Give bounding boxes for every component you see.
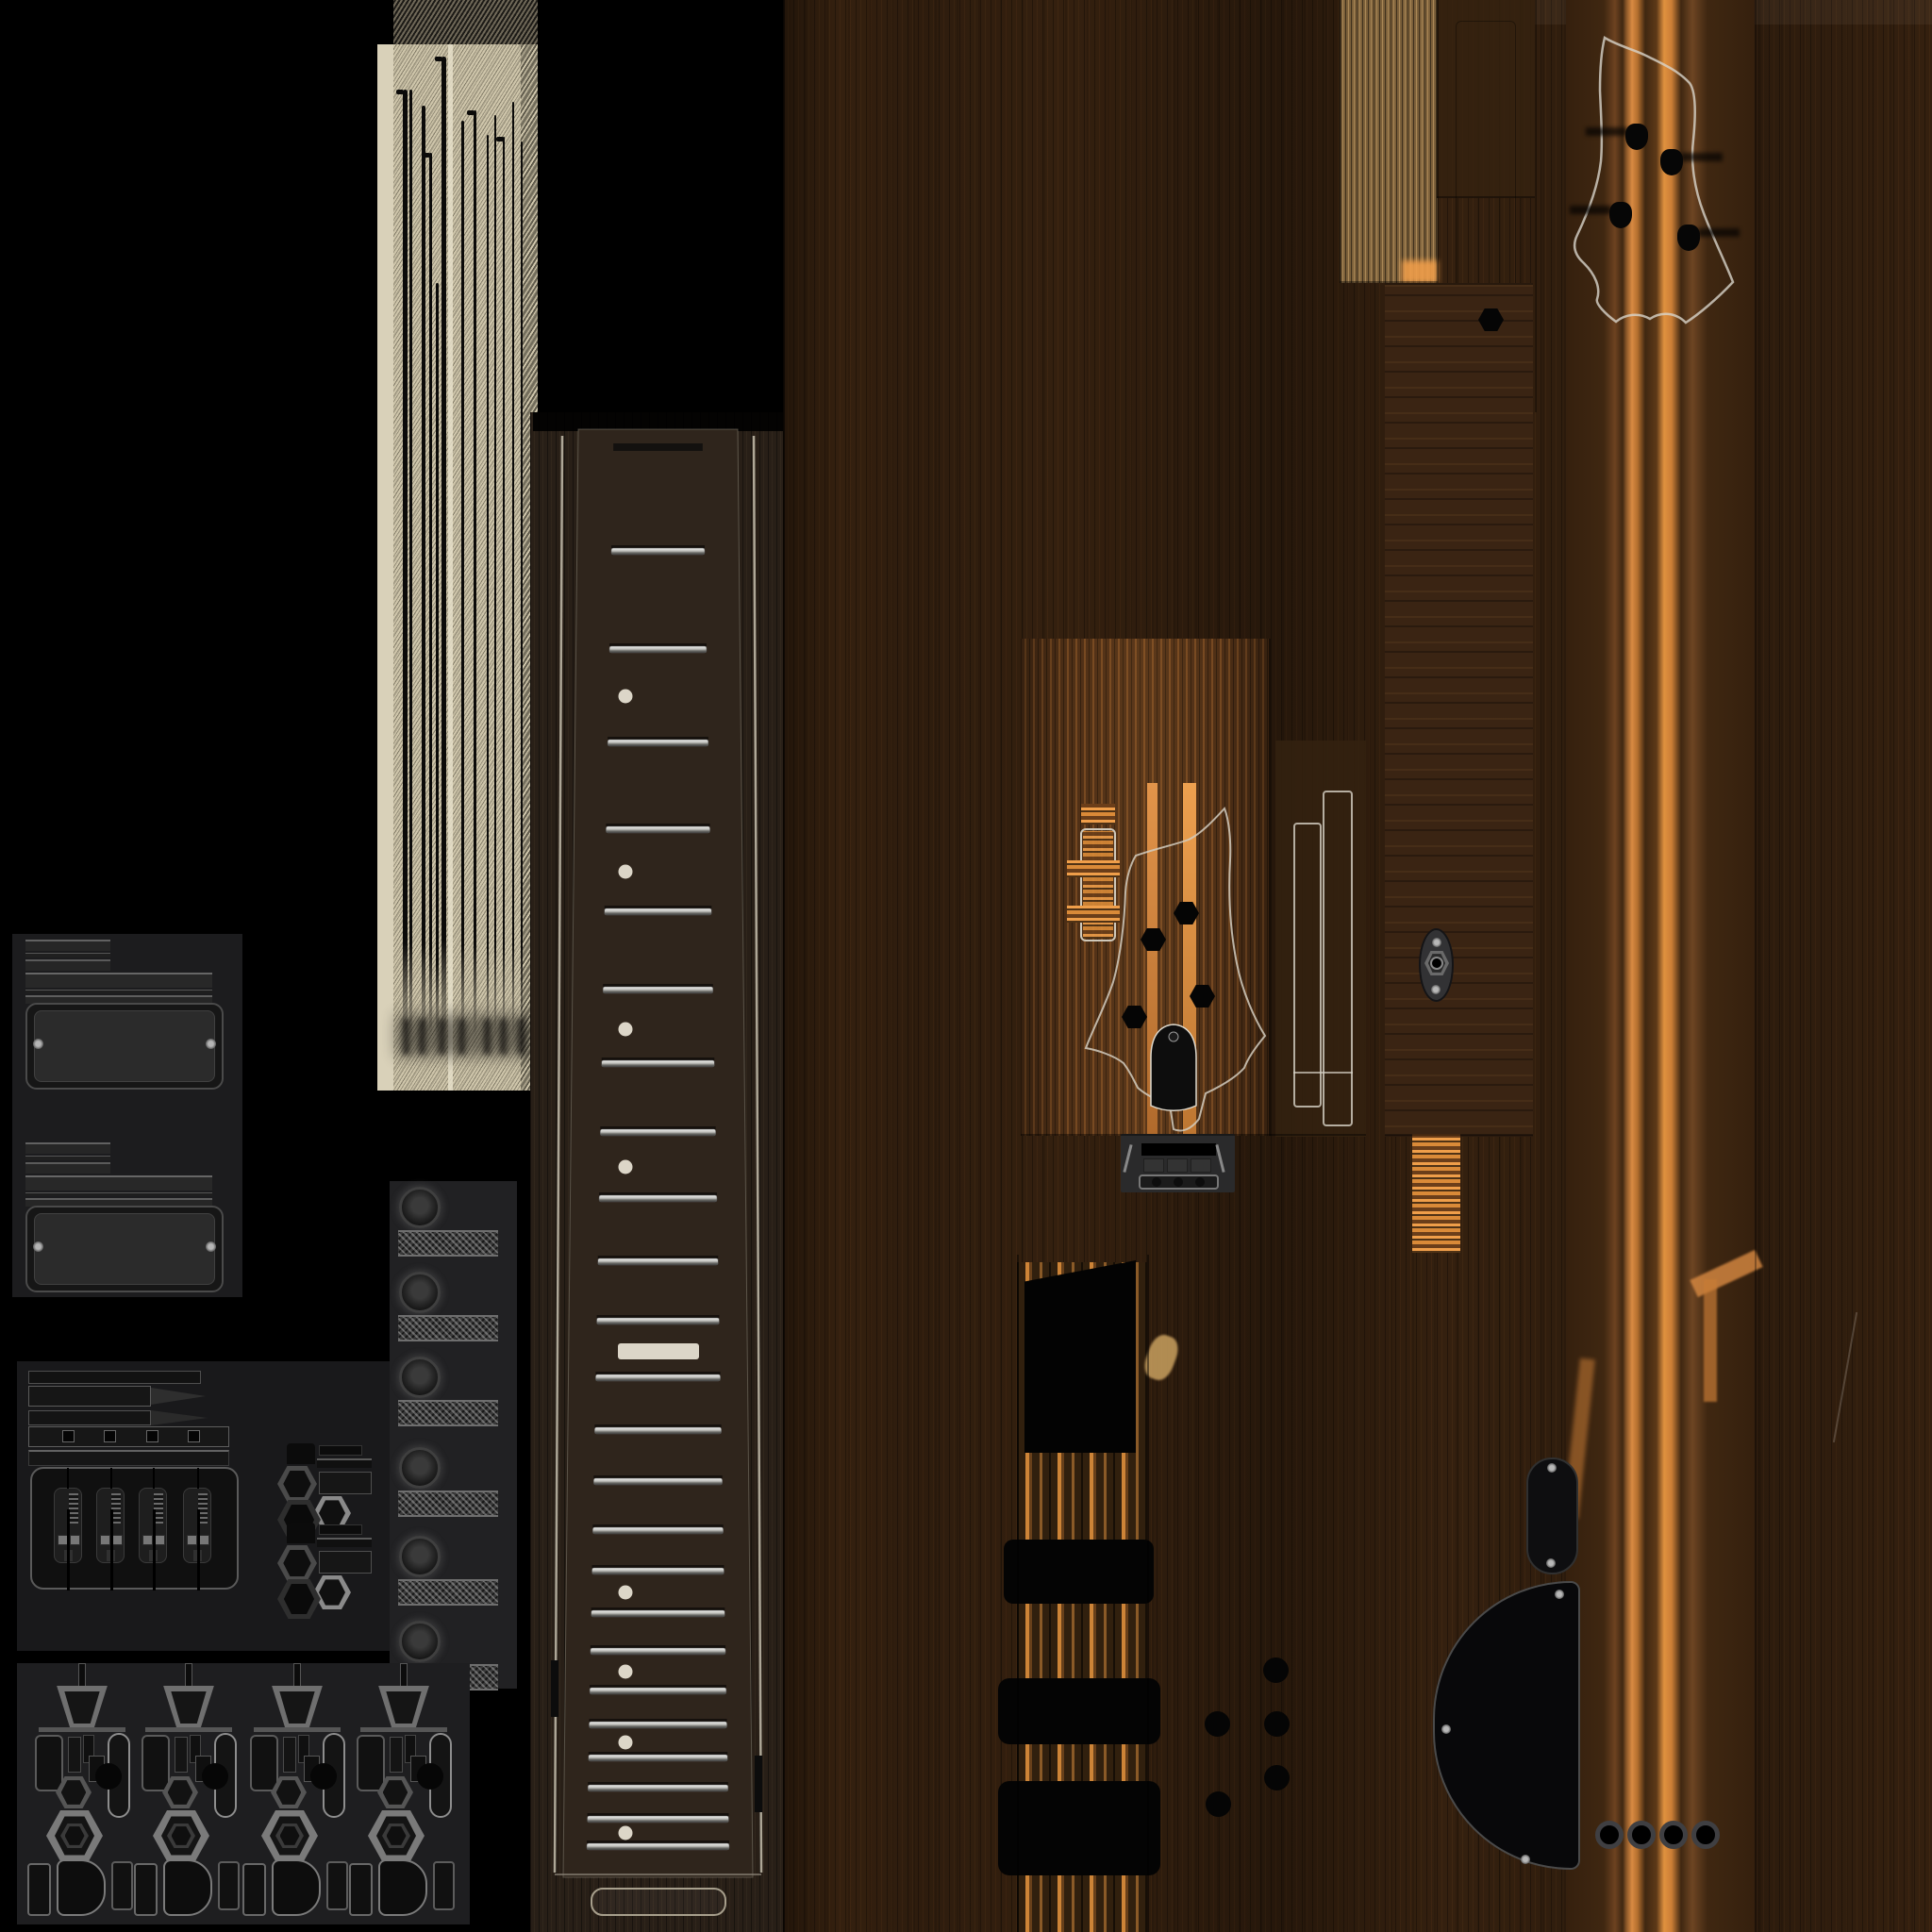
knob-top — [399, 1187, 441, 1228]
tuner-post-hole — [417, 1763, 443, 1790]
tuner-washer-inner — [383, 1780, 408, 1805]
tuner-stem — [293, 1663, 301, 1688]
pickup-rout — [998, 1781, 1160, 1875]
tuner-washer-inner — [276, 1780, 302, 1805]
tailpiece-block — [1167, 1158, 1188, 1173]
seam — [1017, 1255, 1019, 1932]
pickup-screw — [33, 1241, 43, 1252]
bridge-notch — [146, 1430, 158, 1442]
pot-shaft-dot — [1264, 1711, 1290, 1737]
tuner-gear — [175, 1737, 188, 1773]
thin-part-outline — [1293, 823, 1322, 1108]
tuner-washer-inner — [168, 1780, 193, 1805]
seam — [1269, 639, 1271, 1136]
knob-top — [399, 1447, 441, 1489]
tuner-plate-left — [27, 1863, 51, 1916]
nut-cap — [287, 1443, 315, 1464]
peg-shadow — [1681, 153, 1723, 161]
washer-plate — [319, 1472, 372, 1494]
bridge-notch — [188, 1430, 200, 1442]
texture-atlas — [0, 0, 1932, 1932]
tuner-post-hole — [310, 1763, 337, 1790]
screw — [1441, 1724, 1451, 1734]
string-line — [153, 1468, 155, 1489]
nut-bar — [319, 1524, 362, 1535]
bridge-notch — [62, 1430, 75, 1442]
seam — [1437, 196, 1535, 198]
screw — [1547, 1463, 1557, 1473]
pickup-spacer-bar — [25, 1156, 110, 1160]
string-line — [67, 1509, 70, 1591]
tailpiece-bump — [1174, 1177, 1183, 1187]
tuner-post-hole — [95, 1763, 122, 1790]
string-line — [197, 1468, 199, 1489]
pickup-cover — [34, 1010, 215, 1082]
bridge-bar — [28, 1371, 201, 1384]
tuner-shoulder — [360, 1727, 447, 1732]
seam — [1021, 1134, 1366, 1136]
knurled-bar — [398, 1491, 498, 1517]
screw — [1521, 1855, 1530, 1864]
hex-nut-bright-inner — [319, 1500, 345, 1525]
pickup-screw — [33, 1039, 43, 1049]
tuner-housing — [250, 1735, 278, 1791]
knurled-bar — [398, 1230, 498, 1257]
tuner-plate-right — [111, 1861, 133, 1910]
tuner-plate-right — [218, 1861, 240, 1910]
saddle-screw — [100, 1535, 110, 1545]
nut-bar — [317, 1458, 372, 1468]
pickup-spacer-bar — [25, 1142, 110, 1154]
seam — [1535, 0, 1537, 412]
seam — [783, 0, 785, 1932]
knob-top — [399, 1357, 441, 1398]
tuner-plate-d — [163, 1859, 212, 1916]
tuner-plate-right — [433, 1861, 455, 1910]
screw — [1546, 1558, 1556, 1568]
string-ferrule — [1659, 1821, 1688, 1849]
tuner-plate-left — [349, 1863, 373, 1916]
headstock-back-outline — [1574, 38, 1733, 323]
tuner-peg — [1609, 202, 1632, 228]
tuner-plate-left — [242, 1863, 266, 1916]
knob-top — [399, 1621, 441, 1662]
knurled-bar — [398, 1315, 498, 1341]
pickup-rout — [1004, 1540, 1154, 1604]
string-line — [110, 1509, 113, 1591]
tuner-peg — [1625, 124, 1648, 150]
string-ferrule — [1691, 1821, 1720, 1849]
nut-bar — [319, 1445, 362, 1456]
seam — [1147, 1255, 1149, 1932]
tailpiece-bar — [1141, 1143, 1216, 1156]
knob-top — [399, 1272, 441, 1313]
saddle-screw — [70, 1535, 80, 1545]
tuner-shoulder — [145, 1727, 232, 1732]
bridge-bar — [28, 1450, 229, 1466]
screw — [1431, 985, 1441, 994]
tuner-peg — [1660, 149, 1683, 175]
capsule-cover — [1526, 1457, 1578, 1574]
thin-part-outline — [1323, 791, 1353, 1126]
seam — [1340, 0, 1341, 283]
pickup-spacer-bar — [25, 973, 212, 988]
tuner-button-inner — [63, 1691, 100, 1724]
tuner-plate-d — [272, 1859, 321, 1916]
tuner-washer-inner — [61, 1780, 87, 1805]
pickup-cover — [34, 1213, 215, 1285]
tuner-hex-inner-inner — [280, 1826, 300, 1845]
peg-shadow — [1698, 228, 1740, 237]
pot-shaft-dot — [1263, 1657, 1289, 1683]
hex-nut-bright-inner — [319, 1579, 345, 1605]
saddle-screw — [199, 1535, 209, 1545]
black-rout-trapezoid — [1024, 1260, 1136, 1453]
washer-plate — [319, 1551, 372, 1574]
tuner-button-inner — [278, 1691, 315, 1724]
tailpiece-block — [1143, 1158, 1164, 1173]
seam — [1755, 0, 1757, 1932]
string-ferrule — [1595, 1821, 1624, 1849]
pickup-spacer-bar — [25, 1162, 110, 1174]
nut-cap — [287, 1523, 315, 1543]
tuner-housing — [357, 1735, 385, 1791]
string-line — [67, 1468, 69, 1489]
hex-nut-inner — [283, 1471, 310, 1498]
pickup-spacer-bar — [25, 953, 110, 958]
seam — [1385, 1134, 1533, 1136]
jack-hole — [1430, 957, 1443, 970]
seam — [1437, 0, 1439, 283]
tuner-stem — [78, 1663, 86, 1688]
string-line — [110, 1468, 112, 1489]
thin-part-line — [1293, 1072, 1353, 1074]
string-ferrule — [1627, 1821, 1656, 1849]
saddle-screw — [155, 1535, 165, 1545]
pickup-spacer-bar — [25, 959, 110, 971]
pot-shaft-dot — [1264, 1765, 1290, 1790]
tuner-stem — [400, 1663, 408, 1688]
bridge-bar — [28, 1410, 151, 1425]
screw — [1432, 938, 1441, 947]
tuner-stem — [185, 1663, 192, 1688]
tuner-plate-d — [378, 1859, 427, 1916]
tuner-post-hole — [202, 1763, 228, 1790]
pickup-spacer-bar — [25, 990, 212, 993]
pickup-screw — [206, 1241, 216, 1252]
tuner-housing — [142, 1735, 170, 1791]
tailpiece-bump — [1152, 1177, 1161, 1187]
saddle-screw — [142, 1535, 153, 1545]
knob-top — [399, 1536, 441, 1577]
pot-shaft-dot — [1206, 1791, 1231, 1817]
bridge-notch — [104, 1430, 116, 1442]
tuner-plate-d — [57, 1859, 106, 1916]
tuner-button-inner — [385, 1691, 422, 1724]
string-line — [197, 1509, 200, 1591]
saddle-spring — [69, 1493, 78, 1524]
tuner-gear — [283, 1737, 296, 1773]
orange-striped-block — [1412, 1134, 1460, 1253]
tuner-peg — [1677, 225, 1700, 251]
pickup-rout — [998, 1678, 1160, 1744]
tuner-shoulder — [254, 1727, 341, 1732]
tuner-hex-inner-inner — [65, 1826, 85, 1845]
seam — [1385, 283, 1533, 285]
knob-panel — [390, 1181, 517, 1689]
tuner-plate-left — [134, 1863, 158, 1916]
tuner-plate-right — [326, 1861, 348, 1910]
saddle-screw — [187, 1535, 197, 1545]
hex-nut-inner — [283, 1550, 310, 1577]
truss-cover-screw — [1169, 1032, 1178, 1041]
screw — [1555, 1590, 1564, 1599]
tailpiece-bump — [1195, 1177, 1205, 1187]
pickup-spacer-bar — [25, 940, 110, 951]
tuner-button-inner — [170, 1691, 207, 1724]
peg-shadow — [1586, 127, 1627, 136]
pickup-spacer-bar — [25, 1175, 212, 1191]
washer-hex-inner — [284, 1584, 314, 1614]
peg-shadow — [1570, 206, 1611, 214]
knurled-bar — [398, 1400, 498, 1426]
string-line — [153, 1509, 156, 1591]
tuner-housing — [35, 1735, 63, 1791]
tuner-hex-inner-inner — [387, 1826, 407, 1845]
pickup-screw — [206, 1039, 216, 1049]
tuner-shoulder — [39, 1727, 125, 1732]
nut-bar — [317, 1538, 372, 1547]
tuner-gear — [68, 1737, 81, 1773]
saddle-screw — [112, 1535, 123, 1545]
pot-shaft-dot — [1205, 1711, 1230, 1737]
tuner-hex-inner-inner — [172, 1826, 192, 1845]
tailpiece-block — [1191, 1158, 1211, 1173]
pickup-spacer-bar — [25, 1192, 212, 1196]
bridge-bar — [28, 1386, 151, 1407]
knurled-bar — [398, 1579, 498, 1606]
tuner-gear — [390, 1737, 403, 1773]
